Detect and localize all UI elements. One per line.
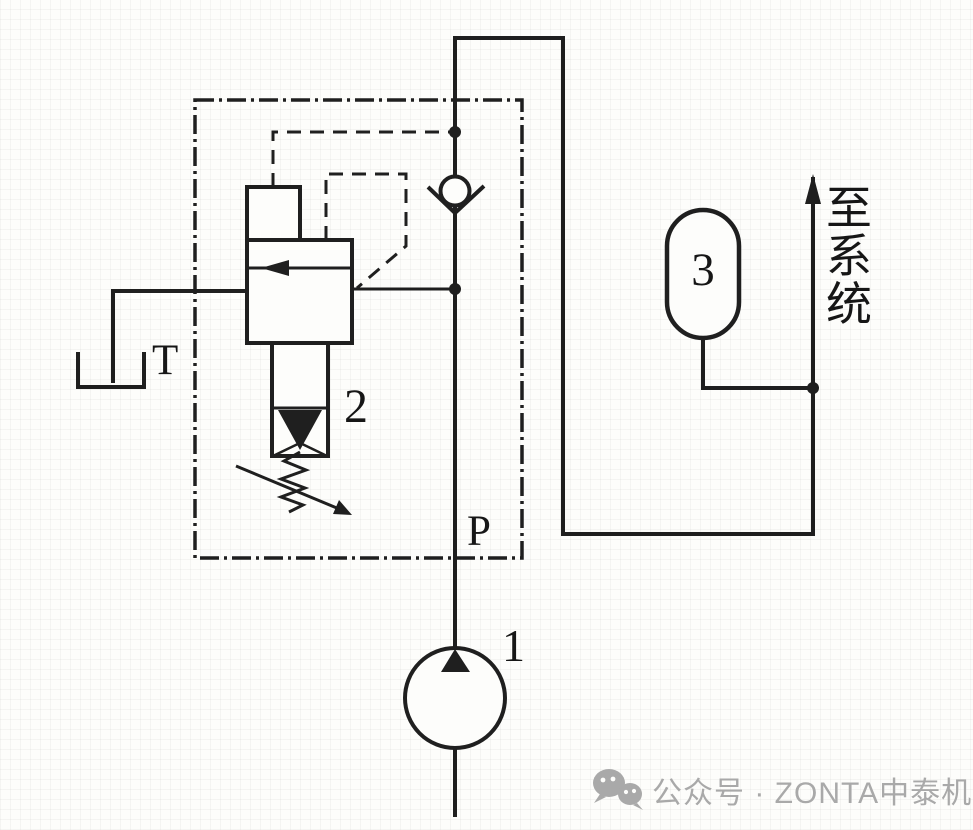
to-system-label: 至 系 统	[826, 183, 872, 330]
enclosure-boundary-box	[195, 100, 522, 558]
tank-port-label: T	[152, 337, 178, 384]
pilot-line-upper	[273, 132, 455, 187]
unloading-valve-label: 2	[344, 380, 368, 433]
adjustable-spring-icon	[236, 452, 352, 515]
wechat-icon	[593, 769, 643, 810]
pump-symbol	[405, 648, 505, 748]
watermark-text: 公众号 · ZONTA中泰机电	[652, 777, 973, 810]
unloading-valve-symbol	[247, 187, 352, 456]
main-pipe	[455, 38, 813, 817]
svg-text:至: 至	[826, 183, 872, 234]
junction-dots	[449, 126, 819, 394]
schematic-canvas: T 2 P	[0, 0, 973, 830]
watermark: 公众号 · ZONTA中泰机电	[593, 769, 973, 810]
valve-tank-line	[113, 291, 247, 383]
to-system-arrow	[805, 174, 821, 204]
accumulator-label: 3	[691, 244, 715, 296]
svg-text:系: 系	[826, 231, 872, 282]
accumulator-symbol	[667, 210, 808, 388]
pressure-port-label: P	[467, 508, 491, 555]
svg-text:统: 统	[826, 279, 872, 330]
pump-label: 1	[502, 620, 525, 671]
